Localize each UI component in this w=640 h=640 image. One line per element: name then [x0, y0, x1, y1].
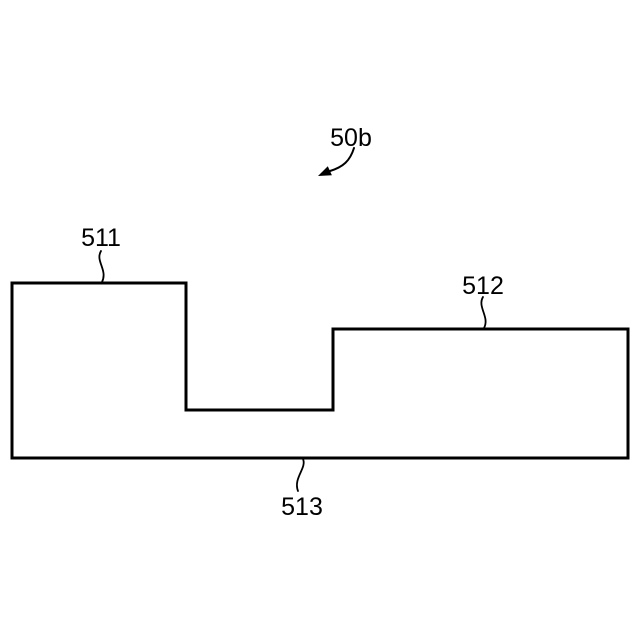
leader-line-513	[297, 459, 304, 491]
reference-arrowhead	[318, 166, 332, 176]
stepped-cross-section-outline	[12, 283, 628, 458]
leader-line-512	[481, 297, 485, 328]
patent-figure: 50b 511 512 513	[0, 0, 640, 640]
stepped-cross-section-diagram: 50b 511 512 513	[0, 0, 640, 640]
figure-reference-label: 50b	[330, 124, 372, 152]
label-512: 512	[462, 272, 504, 300]
label-513: 513	[281, 493, 323, 521]
label-511: 511	[81, 224, 121, 252]
leader-line-511	[99, 251, 103, 282]
